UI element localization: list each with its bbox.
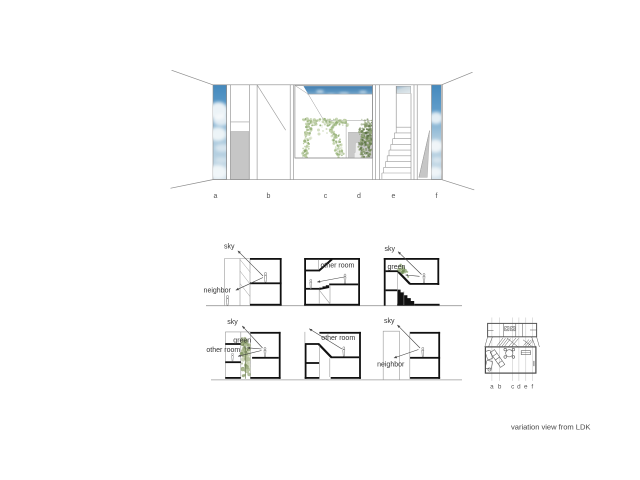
svg-text:f: f [531,384,533,391]
svg-text:sky: sky [227,319,238,326]
svg-text:sky: sky [224,244,235,251]
svg-text:b: b [498,384,502,391]
svg-text:e: e [392,193,396,200]
svg-text:b: b [267,193,271,200]
svg-text:green: green [233,337,251,344]
svg-text:e: e [524,384,528,391]
svg-text:d: d [357,193,361,200]
svg-text:sky: sky [384,318,395,325]
svg-text:other room: other room [321,262,355,269]
svg-text:other room: other room [321,335,355,342]
svg-text:a: a [490,384,494,391]
svg-text:a: a [214,193,218,200]
svg-text:sky: sky [385,246,396,253]
svg-text:variation view from LDK: variation view from LDK [511,423,591,432]
svg-text:other room: other room [206,347,240,354]
svg-text:d: d [517,384,521,391]
svg-text:c: c [511,384,514,391]
svg-text:c: c [324,193,328,200]
svg-text:neighbor: neighbor [377,361,405,368]
svg-text:neighbor: neighbor [204,287,232,294]
svg-text:green: green [388,264,406,271]
svg-text:f: f [436,193,438,200]
